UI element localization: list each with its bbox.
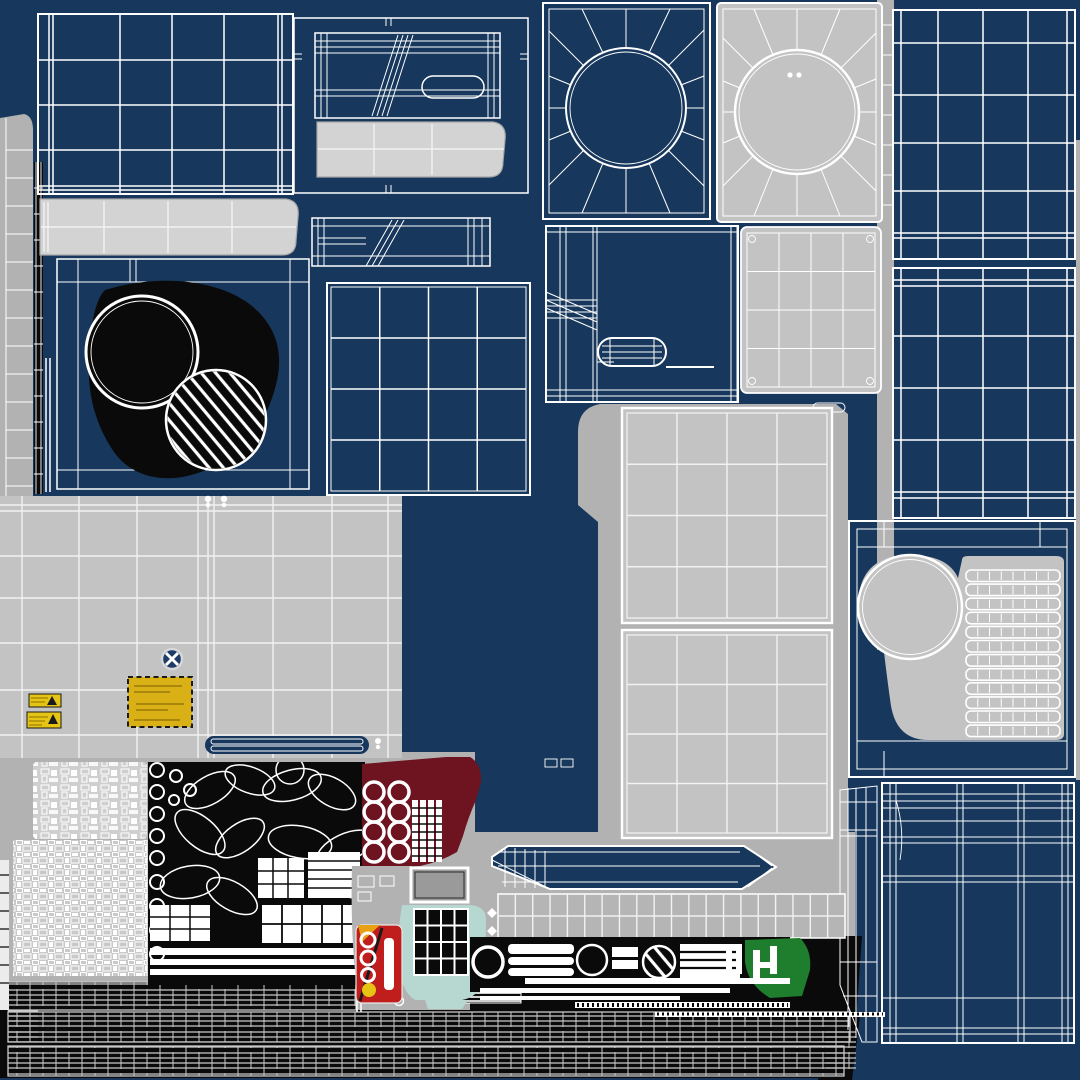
middle-gray-panel-upper [622, 408, 832, 623]
framed-panel-gray-bar [317, 122, 505, 177]
yellow-spec-label [128, 677, 192, 727]
top-left-gray-bar [40, 199, 298, 255]
left-ladder-strip [0, 114, 50, 497]
display-window [411, 868, 468, 902]
extinguisher-label [356, 925, 402, 1003]
gray-grid-strip [498, 894, 845, 938]
ground-mesh-band-1 [8, 982, 356, 1010]
gray-grid-small-panel [741, 227, 881, 412]
backdrop-right-sliver [1076, 140, 1080, 780]
black-parts-cluster [148, 756, 387, 985]
hatched-circle [166, 370, 266, 470]
uv-texture-atlas: const data = JSON.parse(document.getElem… [0, 0, 1080, 1080]
black-grid-panel [414, 909, 468, 975]
left-big-gray-panel [0, 496, 402, 758]
warning-sticker-1 [29, 694, 61, 707]
intake-circle [858, 555, 962, 659]
warning-sticker-2 [27, 712, 61, 728]
middle-gray-panel-lower [622, 630, 832, 838]
fan-dot-2 [796, 72, 801, 77]
fan-panel-gray [717, 3, 882, 222]
pcb-island-upper [33, 762, 147, 839]
fan-dot-1 [787, 72, 792, 77]
no-step-badge [162, 649, 182, 669]
